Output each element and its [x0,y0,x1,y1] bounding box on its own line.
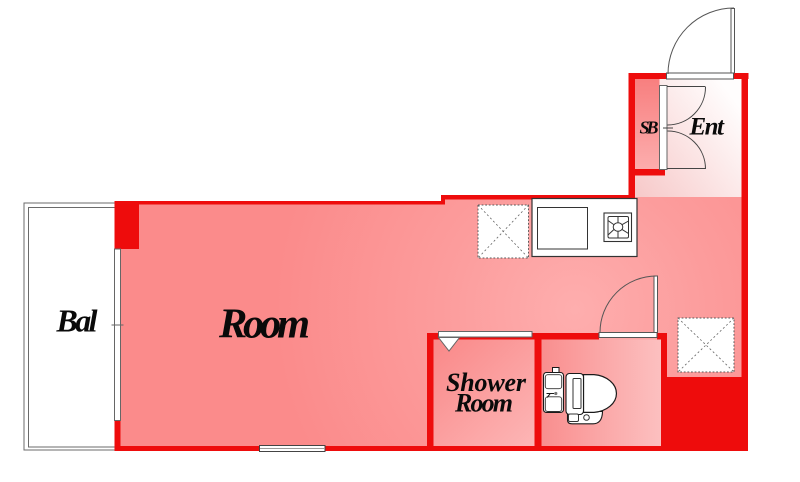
svg-text:Ent: Ent [689,114,726,141]
svg-text:Room: Room [454,389,513,418]
svg-text:Bal: Bal [56,303,98,339]
svg-text:SB: SB [640,118,659,138]
svg-text:Room: Room [218,301,310,348]
